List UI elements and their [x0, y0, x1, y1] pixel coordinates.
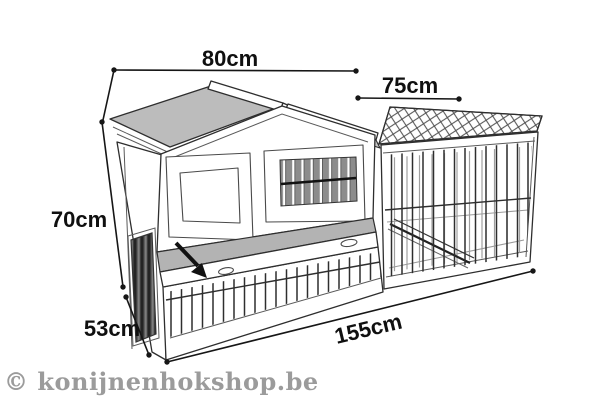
- dimension-endpoint-dot: [353, 68, 358, 73]
- dimension-endpoint-dot: [164, 359, 169, 364]
- dimension-endpoint-dot: [123, 294, 128, 299]
- dimension-leader: [103, 70, 114, 120]
- dimension-label-roof-width: 80cm: [202, 46, 258, 71]
- left-window-inner-frame: [180, 168, 240, 223]
- dimension-diagram-canvas: 80cm 75cm 70cm 53cm 155cm © konijnenhoks…: [0, 0, 600, 400]
- dimension-endpoint-dot: [456, 96, 461, 101]
- wire-run: [379, 107, 542, 289]
- dimension-line: [358, 98, 459, 99]
- dimension-label-run-width: 75cm: [382, 73, 438, 98]
- dimension-label-depth: 53cm: [84, 316, 140, 341]
- dimension-endpoint-dot: [120, 284, 125, 289]
- dimension-endpoint-dot: [530, 268, 535, 273]
- run-front-wires: [384, 142, 534, 277]
- dimension-label-total-length: 155cm: [332, 309, 404, 349]
- dimension-endpoint-dot: [146, 352, 151, 357]
- dimension-run-width: 75cm: [355, 73, 461, 102]
- dimension-endpoint-dot: [99, 119, 104, 124]
- hutch-drawing: [110, 81, 542, 360]
- dimension-endpoint-dot: [355, 95, 360, 100]
- dimension-endpoint-dot: [111, 67, 116, 72]
- dimension-label-height: 70cm: [51, 207, 107, 232]
- dimension-height: 70cm: [51, 119, 126, 289]
- watermark-text: © konijnenhokshop.be: [4, 367, 319, 396]
- rabbit-hutch-diagram: 80cm 75cm 70cm 53cm 155cm © konijnenhoks…: [0, 0, 600, 400]
